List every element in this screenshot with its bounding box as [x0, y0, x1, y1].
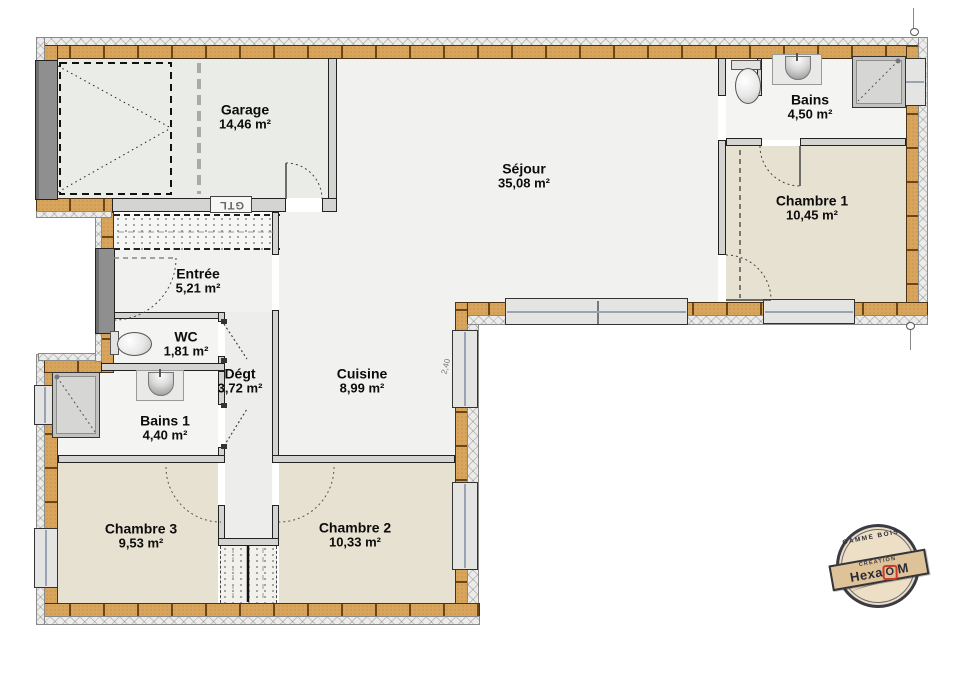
window-bains [903, 58, 926, 106]
room-name: WC [164, 328, 209, 344]
wall-entree-east-a [272, 212, 279, 255]
room-label-chambre1: Chambre 1 10,45 m² [776, 192, 848, 223]
room-name: Chambre 1 [776, 192, 848, 208]
wall-garage-south-a [112, 198, 286, 212]
shower-bains1 [52, 372, 100, 438]
wall-entree-wc [108, 312, 225, 319]
wall-degt-east [272, 310, 279, 462]
wall-garage-east [328, 58, 337, 199]
floor-degt [225, 312, 272, 540]
room-area: 4,50 m² [788, 108, 833, 123]
toilet-bowl-bains [735, 68, 761, 104]
bay-window-sejour [505, 298, 688, 325]
downpipe-line-top [913, 8, 914, 30]
wall-bains-chambre1-a [726, 138, 762, 146]
wall-corridor-east [272, 505, 279, 541]
wall-bottom [36, 603, 480, 617]
gtl-box: GTL [210, 196, 252, 213]
gtl-label: GTL [219, 199, 244, 211]
room-name: Séjour [498, 160, 550, 176]
room-label-chambre2: Chambre 2 10,33 m² [319, 519, 391, 550]
wall-render-garage-south [36, 211, 112, 218]
window-chambre2 [452, 482, 478, 570]
wall-bains1-chambre3 [58, 455, 225, 463]
window-cuisine [452, 330, 478, 408]
room-area: 4,40 m² [140, 429, 190, 444]
room-label-garage: Garage 14,46 m² [219, 101, 271, 132]
wall-corridor-cap [218, 538, 279, 546]
window-chambre1-south [763, 299, 855, 324]
wall-cuisine-chambre2 [272, 455, 455, 463]
window-chambre3 [34, 528, 58, 588]
room-label-bains1: Bains 1 4,40 m² [140, 412, 190, 443]
room-area: 10,33 m² [319, 536, 391, 551]
room-label-chambre3: Chambre 3 9,53 m² [105, 520, 177, 551]
floor-chambre1 [726, 146, 906, 303]
room-area: 3,72 m² [218, 382, 263, 397]
wall-corridor-west [218, 505, 225, 541]
wall-render-bottom [36, 616, 480, 625]
floor-sejour-cuisine [279, 212, 455, 462]
room-label-bains: Bains 4,50 m² [788, 91, 833, 122]
wall-bains-chambre1-b [800, 138, 906, 146]
downpipe-mid-right [906, 322, 915, 330]
downpipe-top-right [910, 28, 919, 36]
room-area: 35,08 m² [498, 177, 550, 192]
toilet-bowl-wc [117, 332, 152, 356]
room-label-sejour: Séjour 35,08 m² [498, 160, 550, 191]
downpipe-line-mid [910, 330, 911, 350]
porch-strip-entree [114, 214, 280, 250]
bay-window-seam [597, 301, 599, 324]
sink-bains [785, 56, 811, 80]
wall-garage-south-b [322, 198, 337, 212]
room-name: Dégt [218, 365, 263, 381]
room-name: Cuisine [337, 365, 388, 381]
room-name: Bains [788, 91, 833, 107]
room-label-cuisine: Cuisine 8,99 m² [337, 365, 388, 396]
room-area: 9,53 m² [105, 537, 177, 552]
technical-block-corridor [220, 546, 277, 603]
vanity-bains [772, 54, 822, 85]
room-label-degt: Dégt 3,72 m² [218, 365, 263, 396]
vanity-bains1 [136, 370, 184, 401]
wall-wc-east-b [218, 356, 225, 364]
room-area: 1,81 m² [164, 345, 209, 360]
room-name: Chambre 3 [105, 520, 177, 536]
room-label-wc: WC 1,81 m² [164, 328, 209, 359]
wall-garage-south-corner [36, 198, 114, 212]
stamp-brand-post: M [896, 560, 910, 577]
room-name: Chambre 2 [319, 519, 391, 535]
floor-plan: Garage 14,46 m² Séjour 35,08 m² Bains 4,… [0, 0, 960, 677]
room-name: Entrée [176, 265, 221, 281]
faucet-bains [796, 53, 798, 61]
room-name: Bains 1 [140, 412, 190, 428]
room-area: 14,46 m² [219, 118, 271, 133]
room-name: Garage [219, 101, 271, 117]
wall-sejour-east-a [718, 58, 726, 96]
garage-door [35, 60, 58, 200]
wall-sejour-east-b [718, 140, 726, 255]
room-area: 5,21 m² [176, 282, 221, 297]
wall-wc-east-a [218, 312, 225, 322]
room-area: 8,99 m² [337, 382, 388, 397]
sink-bains1 [148, 372, 174, 396]
faucet-bains1 [159, 369, 161, 377]
room-label-entree: Entrée 5,21 m² [176, 265, 221, 296]
room-area: 10,45 m² [776, 209, 848, 224]
front-door [95, 248, 115, 334]
shower-bains [852, 56, 906, 108]
floor-garage [58, 58, 330, 198]
stamp-brand-hexagon-o: O [883, 565, 899, 581]
hexaom-stamp: GAMME BOIS CRÉATION HexaOM [827, 515, 929, 617]
